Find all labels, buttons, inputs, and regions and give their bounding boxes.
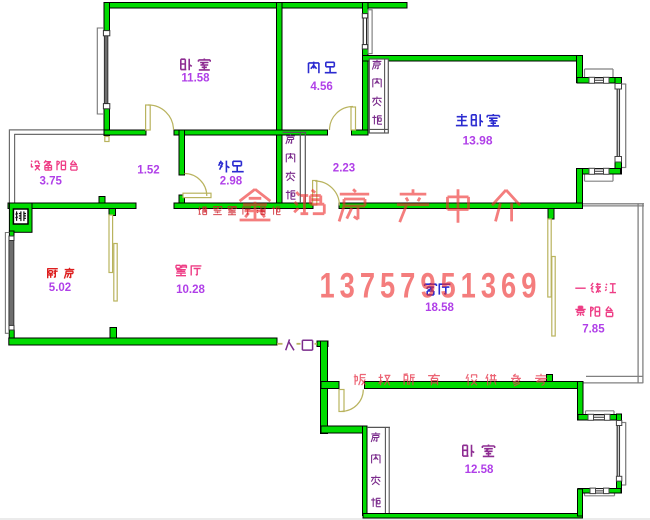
- svg-text:11.58: 11.58: [181, 72, 210, 84]
- svg-text:2.98: 2.98: [220, 175, 243, 187]
- svg-text:3.75: 3.75: [40, 175, 63, 187]
- svg-text:12.58: 12.58: [465, 464, 494, 476]
- svg-text:7.85: 7.85: [582, 323, 605, 335]
- svg-text:13.98: 13.98: [462, 134, 492, 148]
- svg-text:1.52: 1.52: [137, 165, 159, 177]
- svg-text:2.23: 2.23: [333, 163, 355, 175]
- svg-text:5.02: 5.02: [49, 282, 71, 294]
- svg-text:13757951369: 13757951369: [320, 266, 542, 305]
- svg-text:4.56: 4.56: [310, 81, 332, 93]
- svg-text:10.28: 10.28: [176, 284, 205, 296]
